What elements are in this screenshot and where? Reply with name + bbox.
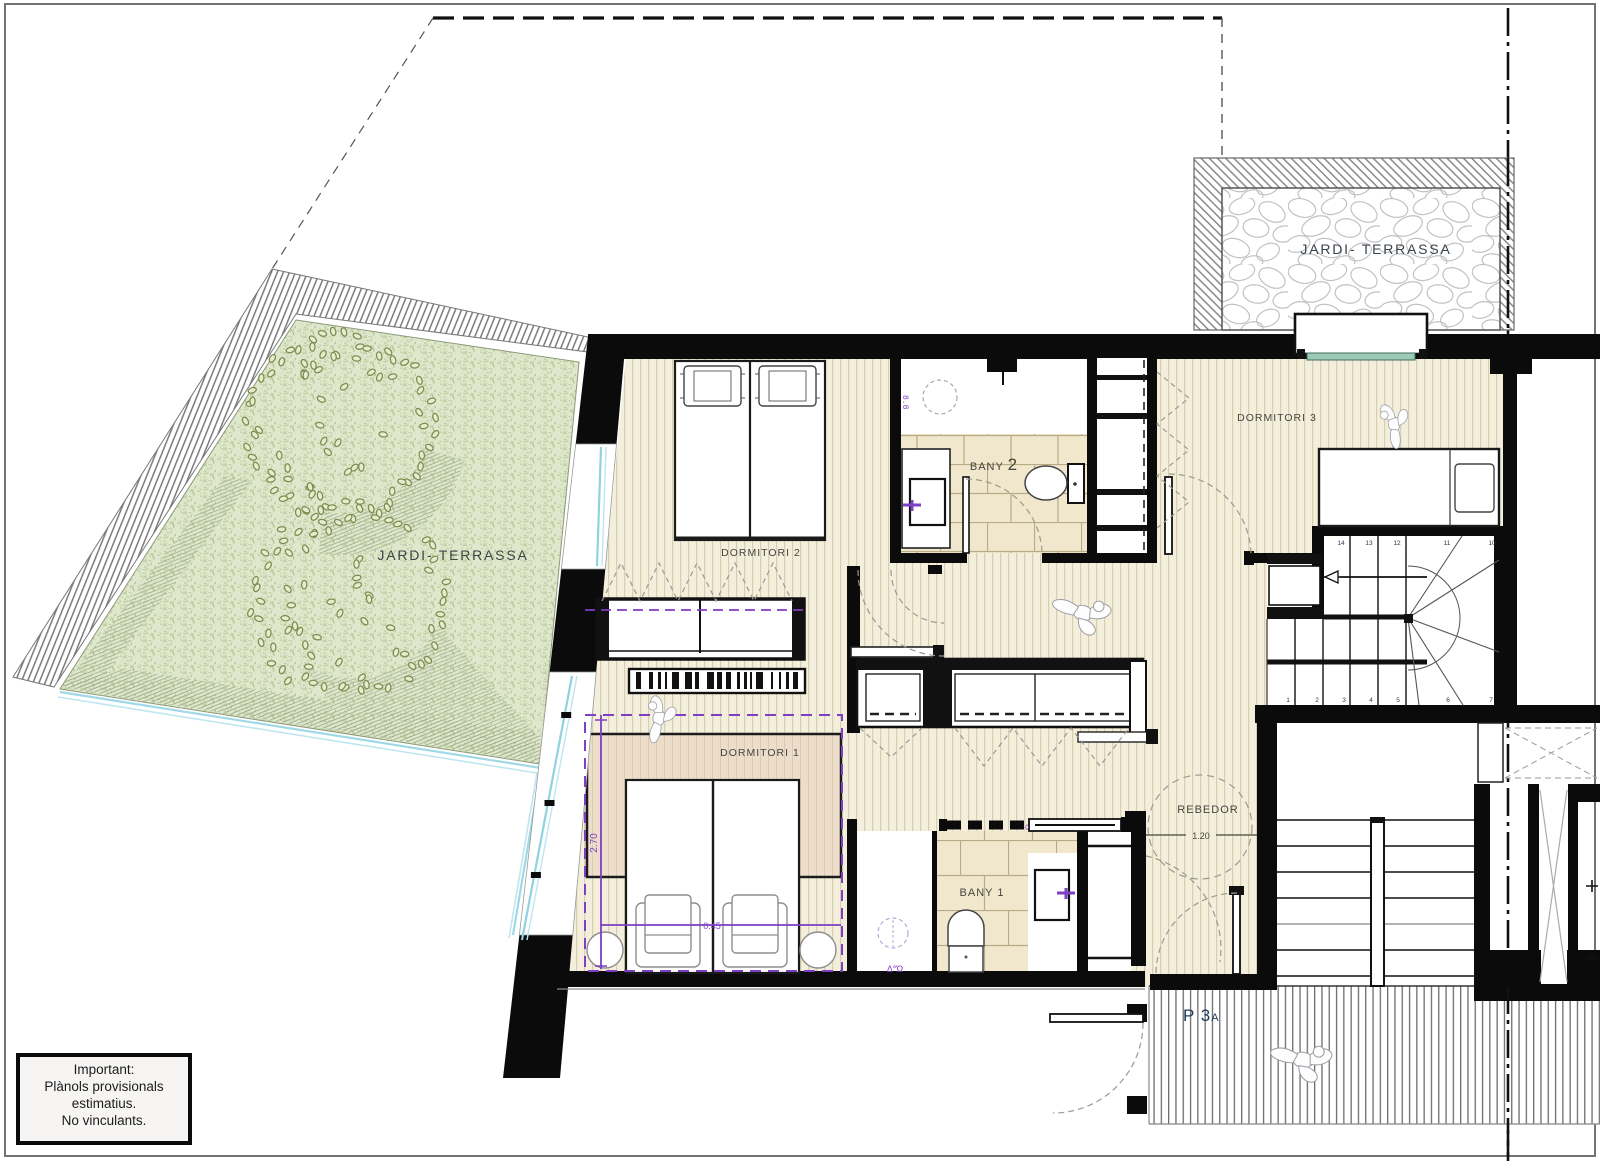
svg-text:REBEDOR: REBEDOR xyxy=(1177,804,1238,816)
svg-text:estimatius.: estimatius. xyxy=(72,1096,137,1111)
svg-text:7: 7 xyxy=(1489,697,1493,704)
svg-text:DORMITORI 3: DORMITORI 3 xyxy=(1237,412,1317,424)
svg-text:4: 4 xyxy=(1369,697,1373,704)
svg-text:JARDI- TERRASSA: JARDI- TERRASSA xyxy=(1300,241,1451,257)
svg-text:1: 1 xyxy=(1286,697,1290,704)
svg-text:DORMITORI 2: DORMITORI 2 xyxy=(721,547,801,559)
svg-text:No vinculants.: No vinculants. xyxy=(62,1113,147,1128)
svg-text:5: 5 xyxy=(1396,697,1400,704)
svg-text:13: 13 xyxy=(1365,540,1373,547)
svg-text:Plànols provisionals: Plànols provisionals xyxy=(44,1079,164,1094)
svg-text:12: 12 xyxy=(1393,540,1401,547)
svg-text:JARDI- TERRASSA: JARDI- TERRASSA xyxy=(377,547,528,563)
svg-text:8.8: 8.8 xyxy=(900,395,909,410)
svg-text:14: 14 xyxy=(1337,540,1345,547)
svg-text:2.70: 2.70 xyxy=(589,833,600,853)
svg-text:10: 10 xyxy=(1488,540,1496,547)
svg-text:BANY 1: BANY 1 xyxy=(960,887,1005,899)
svg-text:1.20: 1.20 xyxy=(1192,831,1210,841)
svg-text:◊: ◊ xyxy=(1025,823,1029,832)
svg-text:2: 2 xyxy=(1315,697,1319,704)
svg-text:DORMITORI 1: DORMITORI 1 xyxy=(720,747,800,759)
svg-text:11: 11 xyxy=(1444,540,1451,547)
svg-text:0.45: 0.45 xyxy=(703,921,721,931)
svg-text:3: 3 xyxy=(1342,697,1346,704)
svg-text:Δ°Ώ: Δ°Ώ xyxy=(887,964,904,974)
svg-text:Important:: Important: xyxy=(74,1062,135,1077)
svg-text:6: 6 xyxy=(1446,697,1450,704)
